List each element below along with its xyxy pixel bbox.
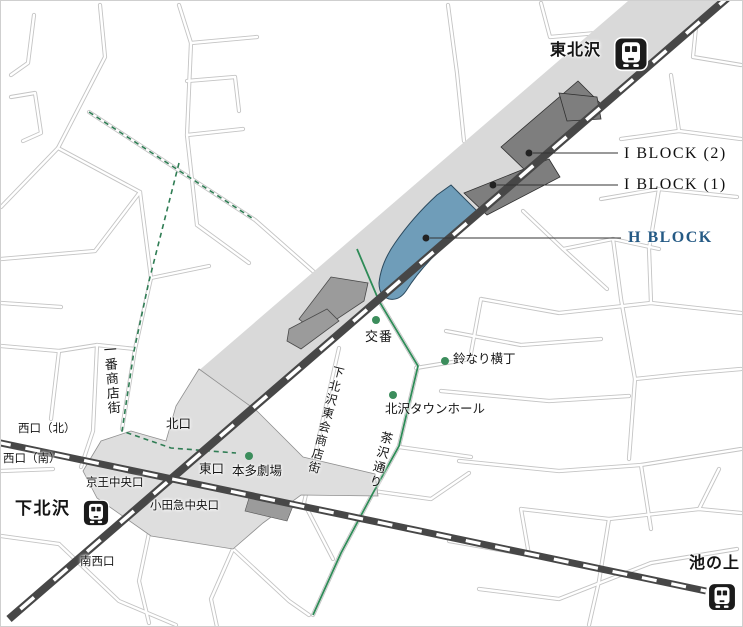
- landmark-label-suzunari-yokocho: 鈴なり横丁: [453, 353, 516, 367]
- train-icon: [615, 38, 648, 71]
- honda-gekijo-dot: [245, 452, 253, 460]
- train-icon: [708, 583, 735, 610]
- shimokitazawa-area-map: 東北沢 下北沢 池の上 I BLOCK (2) I BLOCK (1) H BL…: [0, 0, 743, 627]
- kitazawa-town-hall-dot: [389, 391, 397, 399]
- map-graphics: [1, 1, 743, 627]
- landmark-label-honda-gekijo: 本多劇場: [232, 465, 282, 479]
- i-block-1-dot: [490, 182, 497, 189]
- exit-label-west-north: 西口（北）: [18, 423, 76, 436]
- landmark-label-kitazawa-town-hall: 北沢タウンホール: [385, 403, 485, 417]
- exit-label-keio-central: 京王中央口: [86, 477, 144, 490]
- h-block-dot: [423, 235, 430, 242]
- suzunari-yokocho-dot: [441, 357, 449, 365]
- i-block-2-dot: [526, 150, 533, 157]
- exit-label-southwest: 南西口: [80, 556, 115, 569]
- exit-label-north: 北口: [166, 418, 191, 432]
- i-block-1-label: I BLOCK (1): [624, 176, 727, 194]
- station-label-ikenoue: 池の上: [689, 555, 740, 573]
- train-icon: [83, 500, 108, 525]
- exit-label-west-south: 西口（南）: [3, 453, 61, 466]
- station-label-shimokitazawa: 下北沢: [15, 500, 71, 519]
- i-block-2-label: I BLOCK (2): [624, 145, 727, 163]
- exit-label-east: 東口: [199, 463, 224, 477]
- landmark-label-koban: 交番: [365, 330, 393, 344]
- koban-dot: [372, 316, 380, 324]
- h-block-label: H BLOCK: [628, 229, 713, 247]
- exit-label-odakyu-central: 小田急中央口: [150, 500, 219, 513]
- station-label-tohokuzawa: 東北沢: [550, 42, 601, 60]
